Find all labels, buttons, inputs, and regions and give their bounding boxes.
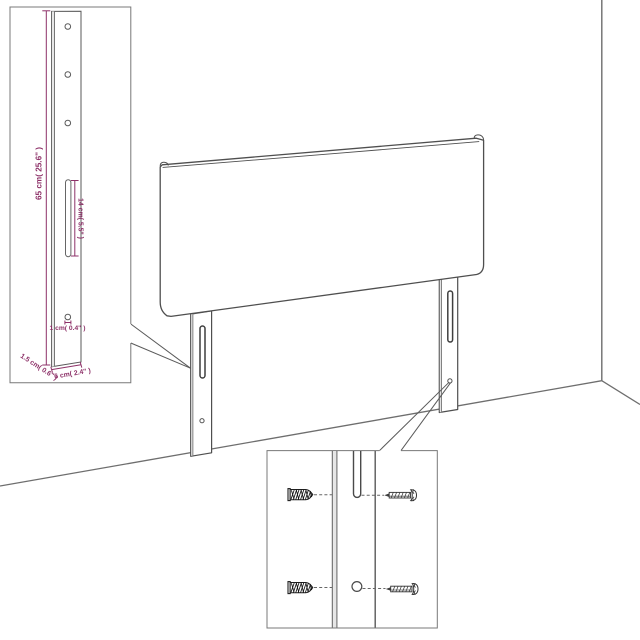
svg-text:1 cm( 0.4" ): 1 cm( 0.4" ): [50, 325, 86, 332]
svg-text:65 cm( 25.6" ): 65 cm( 25.6" ): [35, 147, 44, 200]
svg-text:14 cm( 5.5" ): 14 cm( 5.5" ): [77, 198, 84, 239]
